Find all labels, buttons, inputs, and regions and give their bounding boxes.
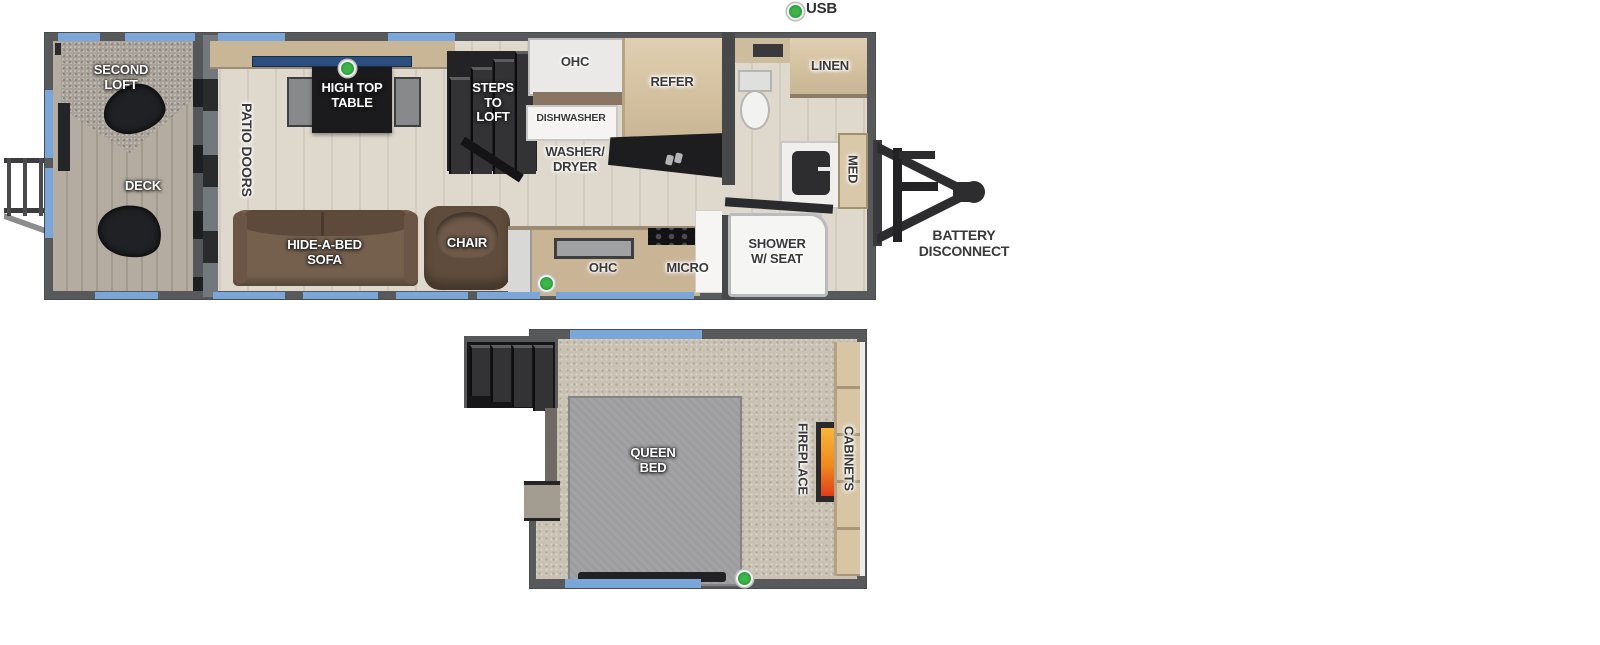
- fireplace-label: FIREPLACE: [790, 396, 814, 521]
- cabinet-side-trim: [860, 342, 865, 576]
- usb-indicator: [339, 60, 356, 77]
- med-label: MED: [839, 133, 865, 205]
- loft-step-tread: [491, 345, 511, 402]
- floorplan-canvas: USB SECOND LOFT DECK PATIO DOORS HIGH TO…: [0, 0, 1600, 645]
- second-loft-label: SECOND LOFT: [65, 63, 177, 92]
- usb-legend-label: USB: [806, 1, 856, 18]
- window-strip: [556, 292, 694, 299]
- galley-top-counter: [210, 41, 455, 69]
- washer-dryer-icon: [665, 154, 674, 165]
- fireplace-flame: [821, 428, 835, 496]
- queen-bed: [568, 396, 742, 586]
- bath-vanity: [780, 141, 842, 209]
- bath-counter-grate: [753, 44, 783, 57]
- ohc-top-label: OHC: [538, 55, 612, 70]
- window-strip: [45, 90, 53, 158]
- sofa-arm-right: [404, 212, 418, 284]
- entry-door-area: [695, 210, 725, 293]
- window-strip: [565, 579, 701, 588]
- window-strip: [388, 33, 455, 41]
- bath-sink: [792, 151, 830, 195]
- dishwasher-label: DISHWASHER: [526, 113, 616, 125]
- deck-window-frame: [58, 103, 70, 171]
- steps-to-loft-label: STEPS TO LOFT: [453, 81, 533, 125]
- refer-label: REFER: [632, 75, 712, 90]
- window-strip: [125, 33, 195, 41]
- window-strip: [213, 292, 285, 299]
- deck-railing: [2, 150, 48, 245]
- toilet-bowl: [740, 90, 770, 130]
- window-strip: [570, 330, 702, 339]
- queen-bed-label: QUEEN BED: [568, 446, 738, 475]
- loft-step-tread: [533, 345, 553, 411]
- sofa-arm-left: [233, 212, 247, 284]
- window-strip: [303, 292, 378, 299]
- kitchen-sink: [554, 238, 634, 259]
- high-top-table-label: HIGH TOP TABLE: [297, 81, 407, 110]
- window-strip: [218, 33, 285, 41]
- window-strip: [45, 168, 53, 238]
- faucet: [818, 167, 832, 171]
- patio-doors-label: PATIO DOORS: [233, 95, 259, 205]
- usb-legend-icon: [787, 3, 804, 20]
- washer-dryer-label: WASHER/ DRYER: [520, 145, 630, 174]
- counter-end-panel: [508, 230, 532, 292]
- deck-interior-wall: [193, 41, 203, 291]
- shower-label: SHOWER W/ SEAT: [733, 237, 821, 266]
- deck-chair-bottom: [93, 198, 168, 264]
- sofa-cushion-divider: [321, 212, 324, 236]
- toilet-tank: [738, 70, 772, 92]
- deck-area: SECOND LOFT DECK: [53, 41, 203, 291]
- loft-step-tread: [470, 345, 490, 396]
- window-strip: [95, 292, 158, 299]
- linen-label: LINEN: [795, 59, 865, 74]
- sofa-label: HIDE-A-BED SOFA: [267, 238, 382, 267]
- ohc-bottom-label: OHC: [563, 261, 643, 276]
- chair-label: CHAIR: [426, 236, 508, 251]
- loft-stair-wall: [545, 408, 557, 490]
- battery-disconnect-label: BATTERY DISCONNECT: [898, 228, 1030, 259]
- refrigerator: [622, 38, 725, 143]
- usb-indicator: [538, 275, 555, 292]
- loft-floorplan: QUEEN BED FIREPLACE CABINETS: [530, 330, 866, 588]
- loft-stairwell: [464, 336, 558, 408]
- sofa-back: [243, 210, 408, 236]
- counter-shelf: [533, 92, 622, 105]
- window-strip: [396, 292, 468, 299]
- usb-indicator: [736, 570, 753, 587]
- loft-step-tread: [512, 345, 532, 407]
- window-strip: [477, 292, 540, 299]
- window-strip: [58, 33, 100, 41]
- patio-doors-wall: [203, 35, 218, 297]
- micro-label: MICRO: [645, 261, 730, 276]
- counter-window-bar: [252, 56, 412, 67]
- cabinets-label: CABINETS: [836, 396, 860, 521]
- main-floorplan: SECOND LOFT DECK PATIO DOORS HIGH TOP TA…: [45, 33, 875, 299]
- loft-landing: [524, 481, 560, 521]
- deck-label: DECK: [83, 179, 203, 194]
- washer-dryer-icon: [674, 152, 683, 163]
